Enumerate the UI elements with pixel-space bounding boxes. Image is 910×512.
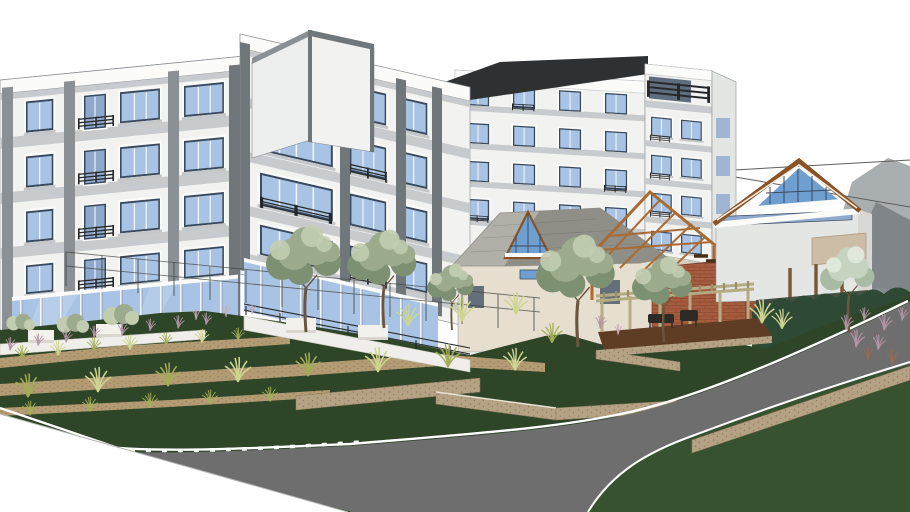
window <box>557 88 583 114</box>
window <box>679 118 703 143</box>
pilaster <box>2 87 13 346</box>
side-window <box>716 118 730 138</box>
window <box>118 250 162 289</box>
window <box>557 126 583 152</box>
window <box>679 156 703 181</box>
window <box>24 206 55 246</box>
window <box>24 151 55 191</box>
window <box>557 164 583 190</box>
tower-front <box>310 34 374 152</box>
window <box>603 91 629 117</box>
window <box>182 189 226 230</box>
window <box>679 194 703 219</box>
window <box>118 86 162 127</box>
side-window <box>716 156 730 176</box>
window <box>511 162 537 188</box>
window <box>118 196 162 237</box>
window <box>182 79 226 120</box>
planter-shadow <box>286 330 316 333</box>
window <box>24 96 55 136</box>
render-canvas: 3D architectural rendering of a five-sto… <box>0 0 910 512</box>
window <box>182 243 226 282</box>
stair-tower <box>252 30 374 158</box>
planter <box>286 318 316 333</box>
outdoor-furniture <box>680 310 698 321</box>
window <box>24 260 55 297</box>
planter-shadow <box>358 337 388 340</box>
planter-shadow <box>96 334 122 337</box>
window <box>118 141 162 182</box>
outdoor-furniture <box>648 314 674 323</box>
pilaster <box>240 42 250 272</box>
window <box>511 124 537 150</box>
window <box>603 129 629 155</box>
window <box>182 134 226 175</box>
architectural-rendering: 3D architectural rendering of a five-sto… <box>0 0 910 512</box>
